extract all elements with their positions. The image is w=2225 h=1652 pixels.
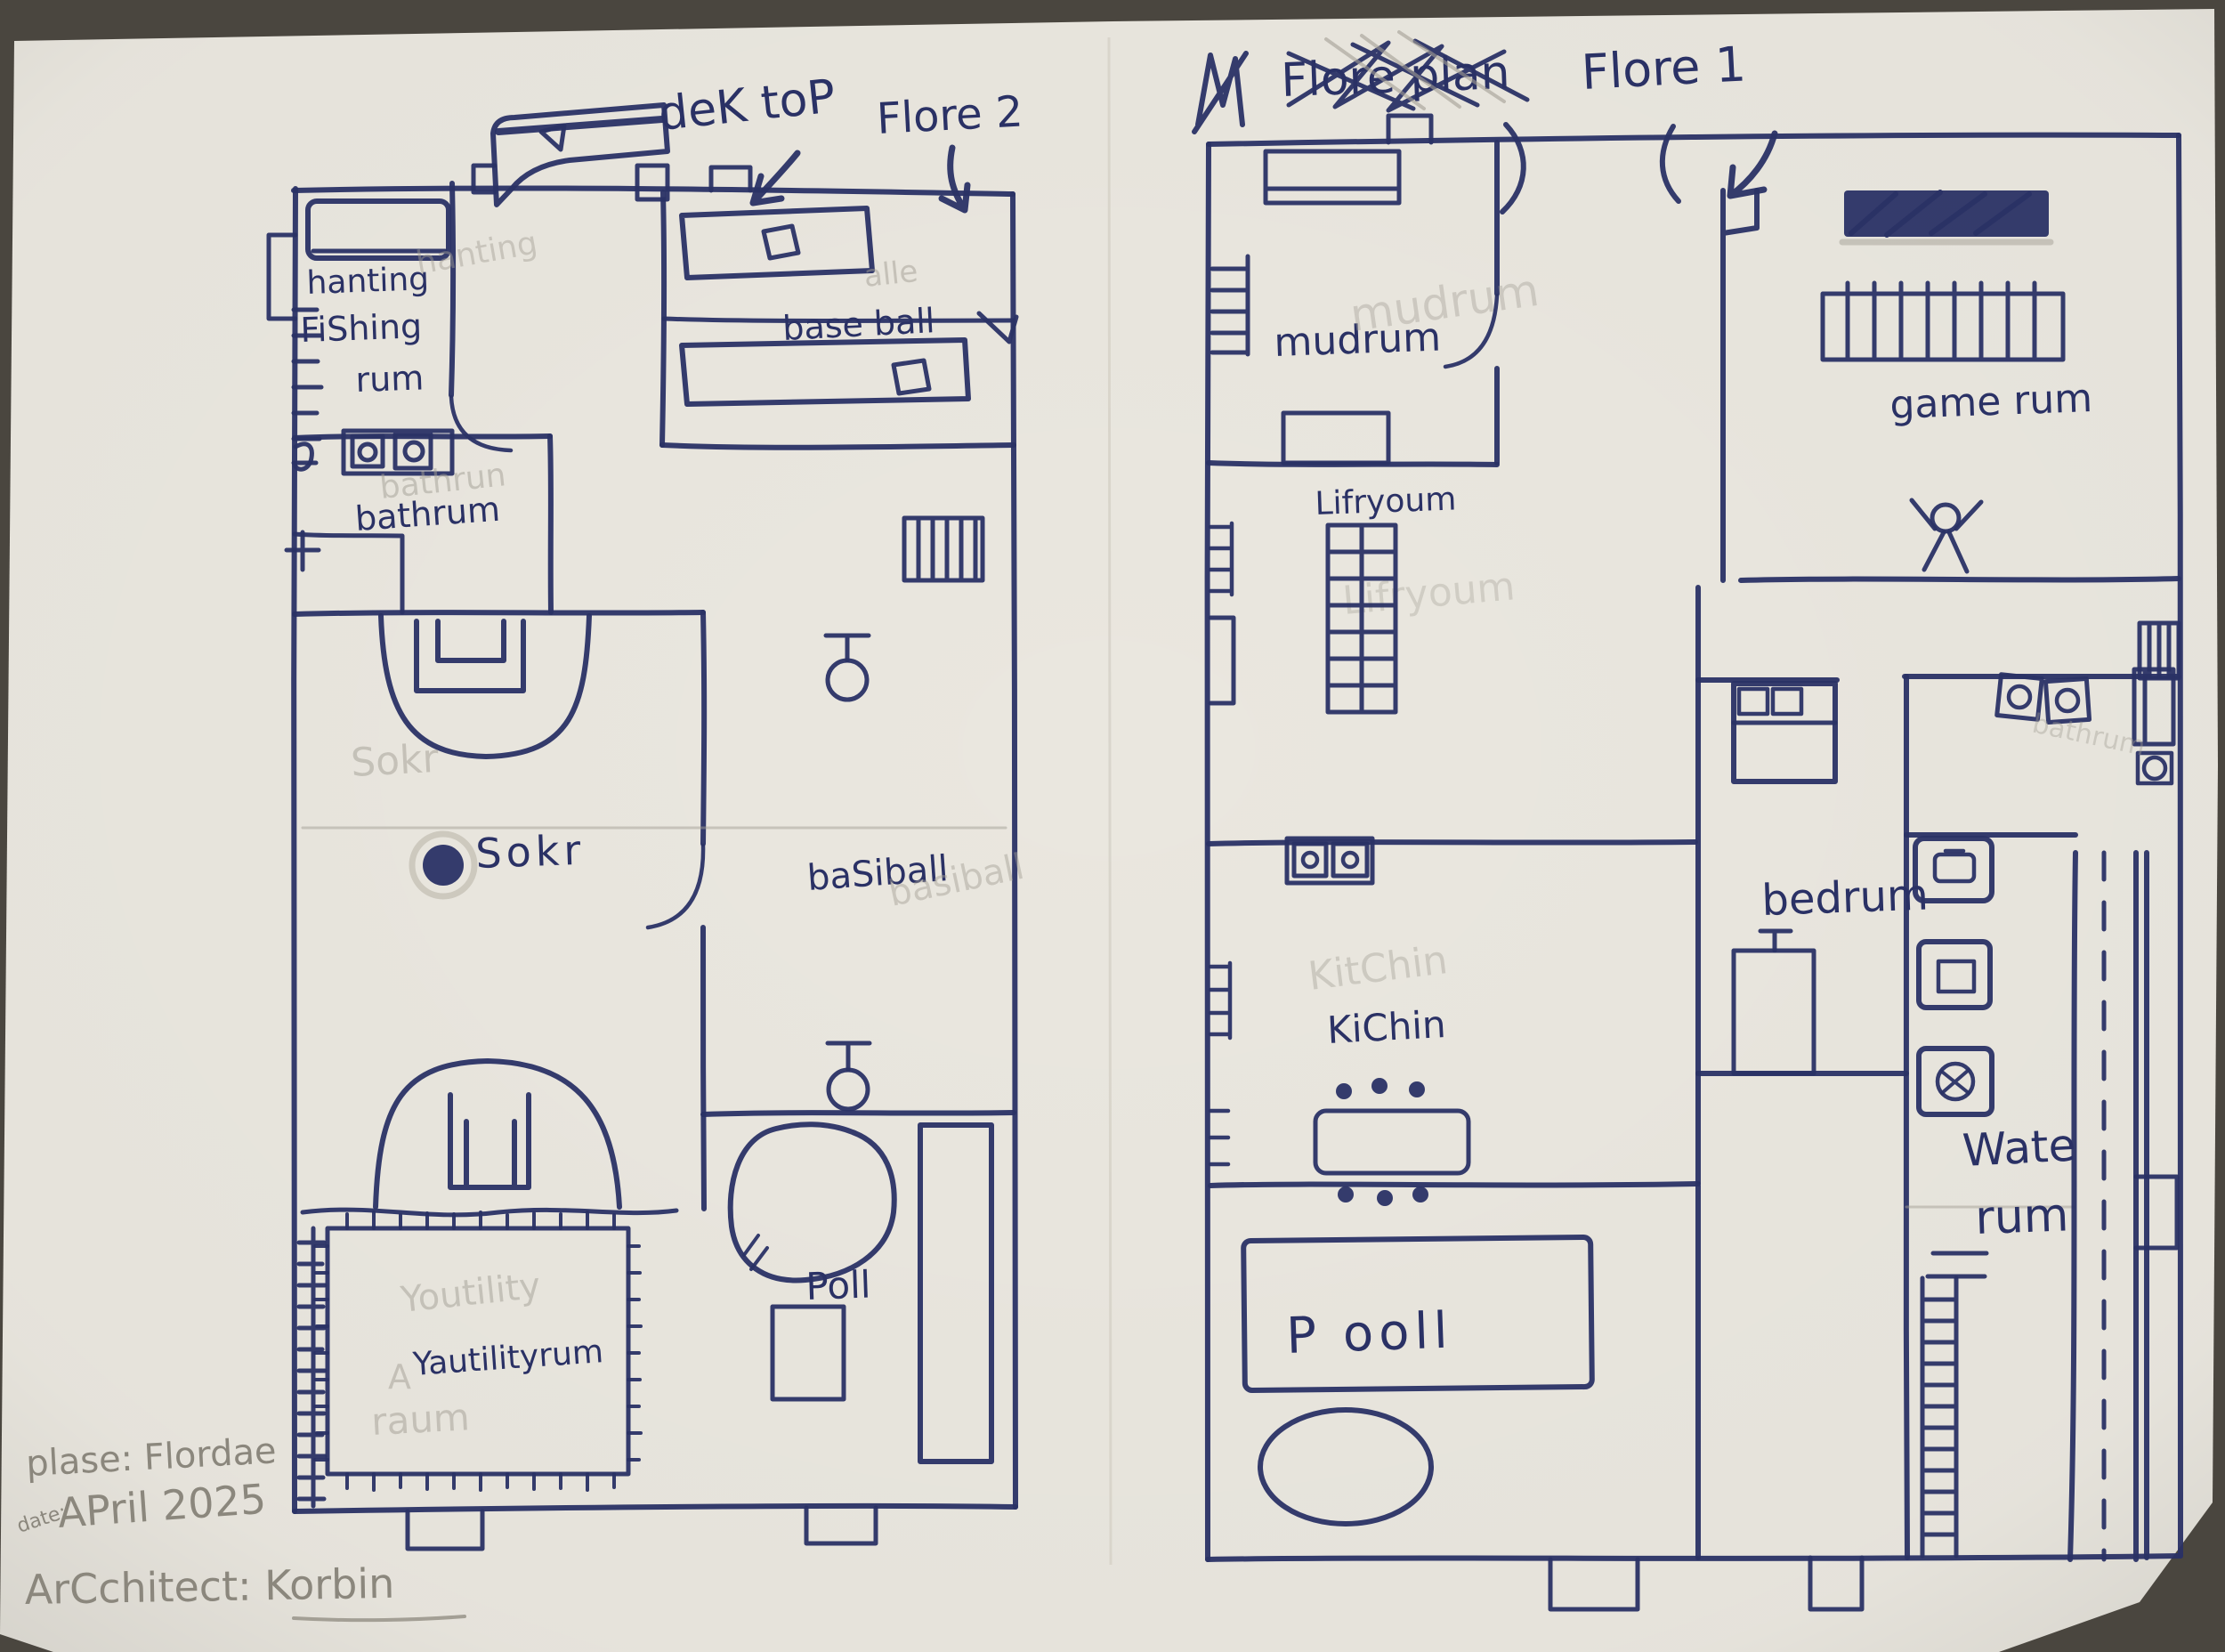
wall-segment <box>1208 1556 2180 1559</box>
room-label-soccer: Sokr <box>474 826 586 878</box>
chair-dot <box>1377 1190 1393 1206</box>
room-label-baseball: base ball <box>781 301 935 348</box>
wall-segment <box>295 612 703 614</box>
wall-segment <box>662 445 1014 448</box>
wall-segment <box>1906 676 1907 1558</box>
room-label-hunting-fishing-3: rum <box>355 358 425 400</box>
room-label-pool: Poll <box>805 1262 872 1308</box>
chair-dot <box>1409 1081 1425 1097</box>
architect-note: ArCchitect: Korbin <box>24 1559 394 1614</box>
room-label-bedroom: bedrum <box>1760 870 1929 926</box>
wall-segment <box>1210 1184 1698 1186</box>
wall-segment <box>703 1113 1014 1114</box>
room-label-living: Lifryoum <box>1315 481 1457 522</box>
wall-segment <box>451 183 453 395</box>
wall-segment <box>2179 135 2180 1556</box>
page-crease-line <box>1109 37 1111 1565</box>
floor2-title: Flore 2 <box>876 86 1024 144</box>
wall-segment <box>550 436 551 612</box>
room-label-water-1: Wate <box>1962 1119 2077 1177</box>
chair-dot <box>1336 1083 1352 1099</box>
pencil-ghost-utility-mark: A <box>388 1357 411 1397</box>
floor1-title: Flore 1 <box>1580 36 1747 101</box>
photo-of-hand-drawn-floor-plans: deK toP Flore 2 hanting FiShing rum hant… <box>0 0 2225 1652</box>
pencil-ghost-utility-bottom: raum <box>370 1395 471 1444</box>
chair-dot <box>1371 1078 1388 1094</box>
wall-segment <box>1741 579 2179 580</box>
wall-segment <box>1208 144 1209 1559</box>
room-label-kitchen: KiChin <box>1326 1002 1447 1052</box>
chair-dot <box>1412 1186 1428 1203</box>
soccer-ball-icon <box>423 845 464 886</box>
room-label-pool1: P ooll <box>1285 1301 1453 1365</box>
wall-segment <box>1209 842 1695 844</box>
pencil-ghost-baseball: alle <box>862 254 920 295</box>
room-label-water-2: rum <box>1974 1188 2069 1245</box>
room-label-game: game rum <box>1889 376 2093 428</box>
room-label-hunting-fishing-2: FiShing <box>300 306 423 350</box>
pencil-ghost-soccer: Sokr <box>350 736 441 786</box>
room-label-hunting-fishing-1: hanting <box>306 261 430 302</box>
chair-dot <box>1338 1186 1354 1203</box>
